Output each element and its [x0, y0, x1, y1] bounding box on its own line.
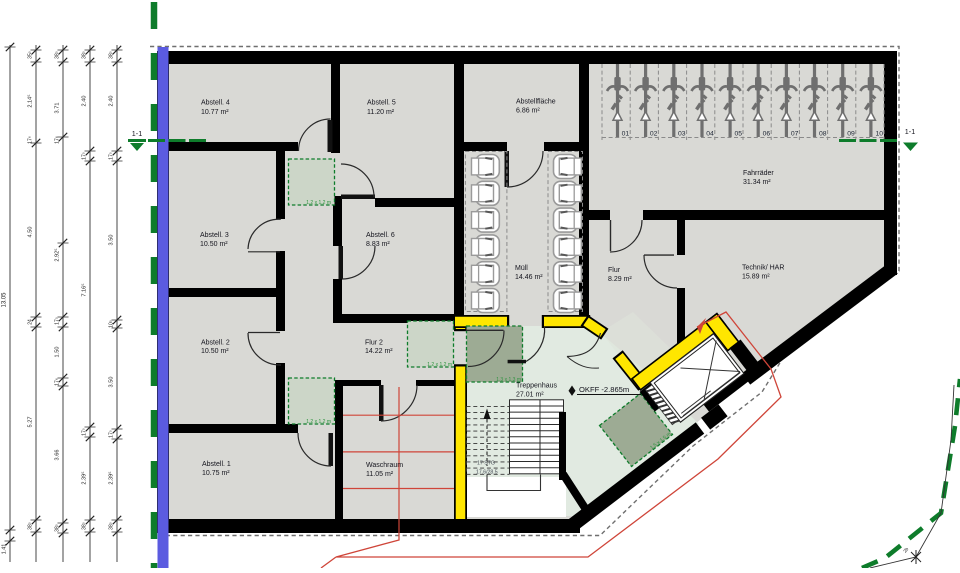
svg-text:Müll: Müll: [515, 265, 528, 272]
svg-text:Treppenhaus: Treppenhaus: [516, 383, 557, 390]
svg-text:17⁵: 17⁵: [109, 430, 115, 438]
svg-text:11.05 m²: 11.05 m²: [366, 471, 394, 478]
svg-text:09: 09: [847, 131, 855, 138]
svg-text:Abstell. 6: Abstell. 6: [366, 232, 395, 239]
svg-text:15.89 m²: 15.89 m²: [742, 274, 770, 281]
svg-text:01: 01: [622, 131, 630, 138]
svg-text:1.2 x 1.2 m: 1.2 x 1.2 m: [306, 200, 331, 206]
svg-text:03: 03: [678, 131, 686, 138]
svg-text:Abstell. 4: Abstell. 4: [201, 100, 230, 107]
svg-text:17⁶: 17⁶: [28, 136, 34, 144]
svg-text:17⁶: 17⁶: [55, 136, 61, 144]
svg-text:10.75 m²: 10.75 m²: [202, 470, 230, 477]
svg-text:17⁵: 17⁵: [55, 317, 61, 325]
svg-text:13.05: 13.05: [2, 292, 8, 308]
svg-text:3.50: 3.50: [109, 235, 115, 246]
svg-text:8.29 m²: 8.29 m²: [608, 276, 632, 283]
svg-text:1.41: 1.41: [2, 544, 8, 555]
svg-text:17⁵: 17⁵: [82, 428, 88, 436]
svg-text:1.2 x 1.2 m: 1.2 x 1.2 m: [427, 362, 452, 368]
svg-text:38⁵: 38⁵: [55, 524, 61, 532]
svg-text:17⁵: 17⁵: [82, 152, 88, 160]
svg-text:1-1: 1-1: [905, 127, 915, 136]
svg-text:10.50 m²: 10.50 m²: [201, 348, 229, 355]
svg-text:6.86 m²: 6.86 m²: [516, 108, 540, 115]
svg-text:38⁵: 38⁵: [82, 51, 88, 59]
svg-text:14.22 m²: 14.22 m²: [365, 348, 393, 355]
svg-text:Abstell. 1: Abstell. 1: [202, 461, 231, 468]
svg-text:27.01 m²: 27.01 m²: [516, 392, 544, 399]
svg-text:Abstellfläche: Abstellfläche: [516, 99, 556, 106]
svg-text:OKFF -2.865m: OKFF -2.865m: [579, 385, 629, 394]
svg-text:38⁵: 38⁵: [55, 51, 61, 59]
svg-text:Flur 2: Flur 2: [365, 340, 383, 347]
svg-text:10.77 m²: 10.77 m²: [201, 109, 229, 116]
svg-text:7.16⁵: 7.16⁵: [81, 283, 88, 296]
svg-text:2.40: 2.40: [82, 96, 88, 107]
svg-text:5.27: 5.27: [28, 417, 34, 428]
svg-text:14.46 m²: 14.46 m²: [515, 274, 543, 281]
svg-text:3.50: 3.50: [109, 377, 115, 388]
svg-text:3.71: 3.71: [55, 103, 61, 114]
svg-text:Abstell. 3: Abstell. 3: [200, 232, 229, 239]
svg-text:2.39⁵: 2.39⁵: [108, 471, 115, 484]
svg-text:1.2 x 1.2 m: 1.2 x 1.2 m: [306, 419, 331, 425]
svg-text:07: 07: [791, 131, 799, 138]
svg-text:1-1: 1-1: [132, 129, 142, 138]
svg-text:11.20 m²: 11.20 m²: [367, 109, 395, 116]
svg-text:4.50: 4.50: [28, 227, 34, 238]
svg-text:05: 05: [734, 131, 742, 138]
svg-text:38⁵: 38⁵: [82, 522, 88, 530]
svg-text:17 STG: 17 STG: [477, 461, 495, 467]
svg-text:24: 24: [28, 319, 34, 325]
svg-text:38⁵: 38⁵: [109, 522, 115, 530]
svg-text:17.6/28.5: 17.6/28.5: [476, 470, 498, 476]
svg-text:Abstell. 2: Abstell. 2: [201, 340, 230, 347]
svg-text:17⁶: 17⁶: [55, 378, 61, 386]
svg-text:10⁵: 10⁵: [109, 320, 115, 328]
svg-text:3.66: 3.66: [55, 450, 61, 461]
svg-text:Abstell. 5: Abstell. 5: [367, 100, 396, 107]
svg-text:02: 02: [650, 131, 658, 138]
svg-text:10: 10: [875, 131, 883, 138]
svg-text:Flur: Flur: [608, 267, 621, 274]
svg-text:38⁵: 38⁵: [109, 51, 115, 59]
svg-text:08: 08: [819, 131, 827, 138]
svg-text:Technik/ HAR: Technik/ HAR: [742, 265, 784, 272]
svg-text:2.39⁵: 2.39⁵: [81, 471, 88, 484]
svg-text:1.50: 1.50: [55, 347, 61, 358]
svg-text:2.14⁵: 2.14⁵: [27, 94, 34, 107]
svg-text:35⁵: 35⁵: [28, 51, 34, 59]
svg-text:38⁵: 38⁵: [28, 522, 34, 530]
svg-text:06: 06: [763, 131, 771, 138]
svg-text:31.34 m²: 31.34 m²: [743, 179, 771, 186]
svg-text:10.50 m²: 10.50 m²: [200, 241, 228, 248]
svg-text:8.83 m²: 8.83 m²: [366, 241, 390, 248]
svg-text:Waschraum: Waschraum: [366, 462, 403, 469]
svg-text:04: 04: [706, 131, 714, 138]
svg-text:2.40: 2.40: [109, 96, 115, 107]
svg-text:2.92⁵: 2.92⁵: [54, 248, 61, 261]
svg-text:Fahrräder: Fahrräder: [743, 170, 774, 177]
svg-text:17⁵: 17⁵: [109, 152, 115, 160]
